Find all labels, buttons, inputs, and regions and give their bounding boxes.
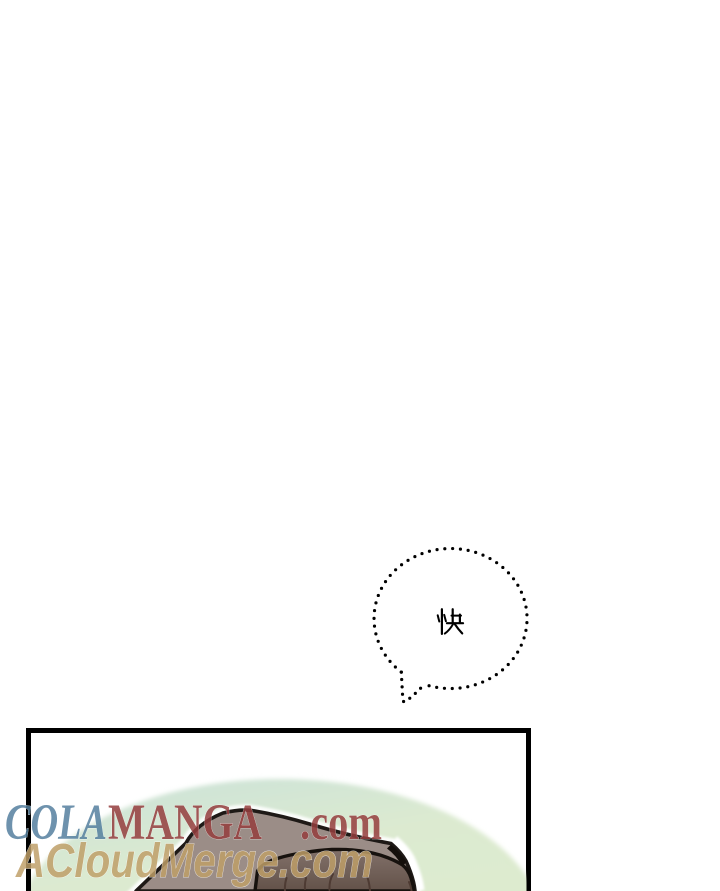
svg-text:ACloudMerge.com: ACloudMerge.com: [15, 835, 373, 888]
